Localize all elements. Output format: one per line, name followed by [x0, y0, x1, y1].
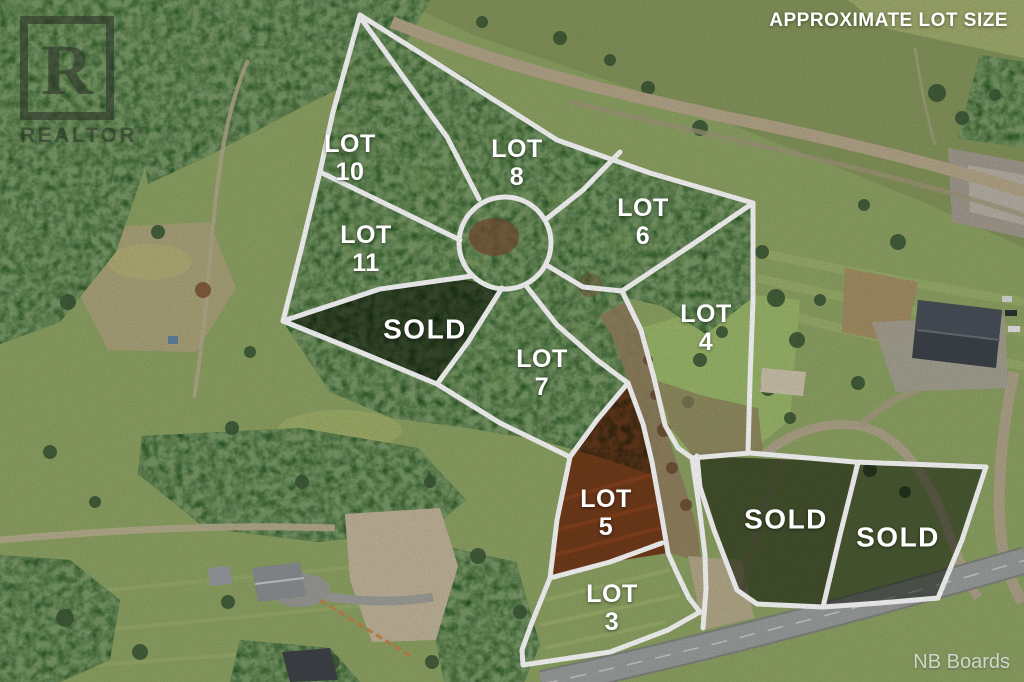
sold-east-label: SOLD [744, 503, 828, 534]
aerial-lot-map: LOT 10 LOT 8 LOT 6 LOT 11 SOLD LOT 4 LOT… [0, 0, 1024, 682]
realtor-wordmark: REALTOR® [20, 124, 144, 148]
page-title: APPROXIMATE LOT SIZE [769, 10, 1008, 32]
lot-7-label: LOT 7 [516, 345, 568, 401]
photo-credit: NB Boards [913, 651, 1010, 674]
sold-center-label: SOLD [383, 313, 467, 344]
sold-far-east-label: SOLD [856, 521, 940, 552]
lot-4-label: LOT 4 [680, 300, 732, 356]
photo-grain [0, 0, 1024, 682]
aerial-photo-canvas [0, 0, 1024, 682]
realtor-watermark: R REALTOR® [20, 16, 144, 148]
lot-8-label: LOT 8 [491, 135, 543, 191]
lot-10-label: LOT 10 [324, 130, 376, 186]
realtor-logo-icon: R [20, 16, 114, 120]
lot-3-label: LOT 3 [586, 580, 638, 636]
lot-6-label: LOT 6 [617, 194, 669, 250]
lot-11-label: LOT 11 [340, 221, 392, 277]
lot-5-label: LOT 5 [580, 485, 632, 541]
